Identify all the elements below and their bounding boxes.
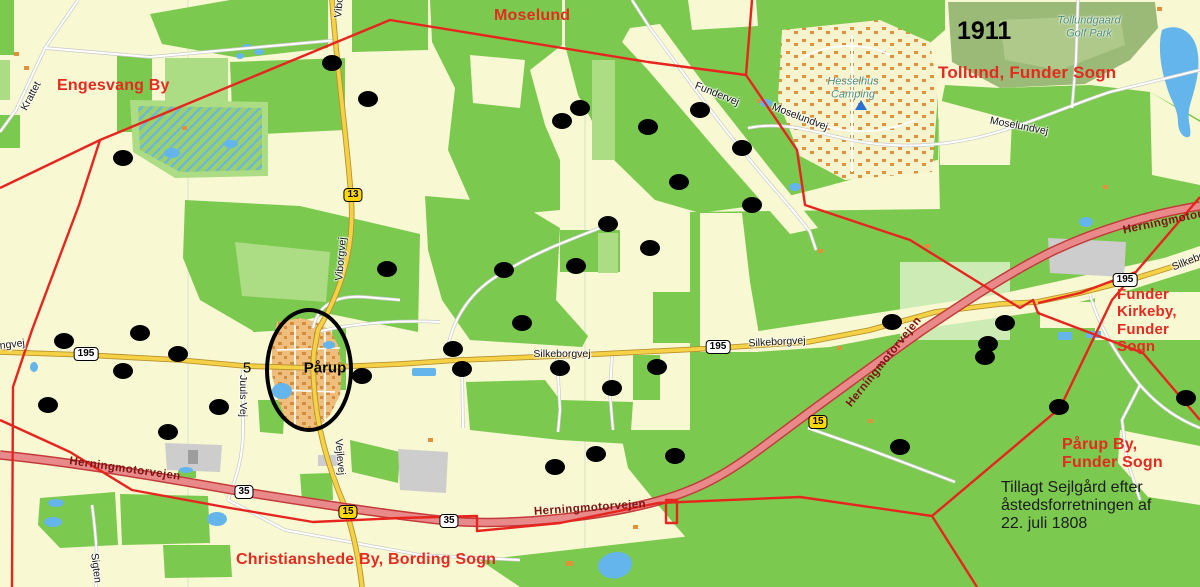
map-dot [545, 459, 565, 475]
area-label-christianshede-by-bording-sogn: Christianshede By, Bording Sogn [236, 551, 496, 569]
route-shield-15: 15 [338, 505, 357, 519]
street-label: Engesvangvej [0, 337, 25, 357]
map-dot [669, 174, 689, 190]
area-label-engesvang-by: Engesvang By [57, 77, 170, 95]
note-text: Tillagt Sejlgård efter åstedsforretninge… [1001, 479, 1151, 533]
map-annotations-overlay: 1911 Engesvang ByMoselundTollund, Funder… [0, 0, 1200, 587]
street-label: Juuls Vej [237, 375, 249, 417]
map-dot [322, 55, 342, 71]
route-shield-195: 195 [74, 347, 99, 361]
route-shield-15: 15 [808, 415, 827, 429]
map-dot [640, 240, 660, 256]
map-dot [647, 359, 667, 375]
map-dot [890, 439, 910, 455]
map-dot [512, 315, 532, 331]
map-dot [552, 113, 572, 129]
map-dot [494, 262, 514, 278]
map-dot [54, 333, 74, 349]
area-label-funder-kirkeby-funder-sogn: Funder Kirkeby, Funder Sogn [1117, 286, 1177, 355]
black-label-number-five: 5 [243, 360, 251, 377]
map-dot [975, 349, 995, 365]
map-dot [690, 102, 710, 118]
route-shield-35: 35 [234, 485, 253, 499]
place-label-tollundgaard-golf-park: Tollundgaard Golf Park [1057, 14, 1120, 39]
street-label: Silkeborgvej [1170, 241, 1200, 274]
paarup-highlight-ellipse [265, 308, 353, 432]
map-dot [377, 261, 397, 277]
route-shield-35: 35 [439, 514, 458, 528]
motorway-label: Herningmotorvejen [844, 315, 924, 410]
map-dot [130, 325, 150, 341]
street-label: Viborgvej [332, 0, 348, 18]
street-label: Viborgvej [333, 237, 349, 281]
map-dot [358, 91, 378, 107]
campground-icon [855, 100, 867, 110]
area-label-moselund: Moselund [494, 7, 570, 25]
map-dot [168, 346, 188, 362]
area-label-paarup-by-funder-sogn: Pårup By, Funder Sogn [1062, 436, 1163, 473]
map-dot [598, 216, 618, 232]
route-shield-195: 195 [706, 340, 731, 354]
map-dot [882, 314, 902, 330]
map-dot [742, 197, 762, 213]
street-label: Moselundvej [989, 114, 1049, 137]
route-shield-13: 13 [343, 188, 362, 202]
map-dot [443, 341, 463, 357]
map-dot [586, 446, 606, 462]
motorway-label: Herningmotorvejen [69, 455, 182, 483]
street-label: Moselundvej [770, 101, 829, 133]
street-label: Silkeborgvej [748, 335, 806, 350]
street-label: Silkeborgvej [533, 348, 590, 360]
map-dot [732, 140, 752, 156]
street-label: Vejlevej [332, 438, 347, 475]
motorway-label: Herningmotorvejen [1122, 201, 1200, 236]
map-dot [452, 361, 472, 377]
map-dot [602, 380, 622, 396]
map-dot [1176, 390, 1196, 406]
map-dot [638, 119, 658, 135]
map-dot [566, 258, 586, 274]
map-dot [995, 315, 1015, 331]
map-dot [570, 100, 590, 116]
street-label: Sigten [88, 552, 104, 583]
map: 1911 Engesvang ByMoselundTollund, Funder… [0, 0, 1200, 587]
map-dot [209, 399, 229, 415]
map-dot [38, 397, 58, 413]
map-dot [113, 363, 133, 379]
street-label: Krattet [18, 80, 43, 113]
area-label-tollund-funder-sogn: Tollund, Funder Sogn [938, 63, 1116, 83]
place-label-hesselhus-camping: Hesselhus Camping [827, 75, 878, 100]
route-shield-195: 195 [1113, 273, 1138, 287]
map-dot [352, 368, 372, 384]
map-dot [665, 448, 685, 464]
map-dot [113, 150, 133, 166]
map-dot [1049, 399, 1069, 415]
year-label: 1911 [957, 17, 1011, 46]
map-dot [158, 424, 178, 440]
motorway-label: Herningmotorvejen [534, 498, 647, 518]
map-dot [550, 360, 570, 376]
